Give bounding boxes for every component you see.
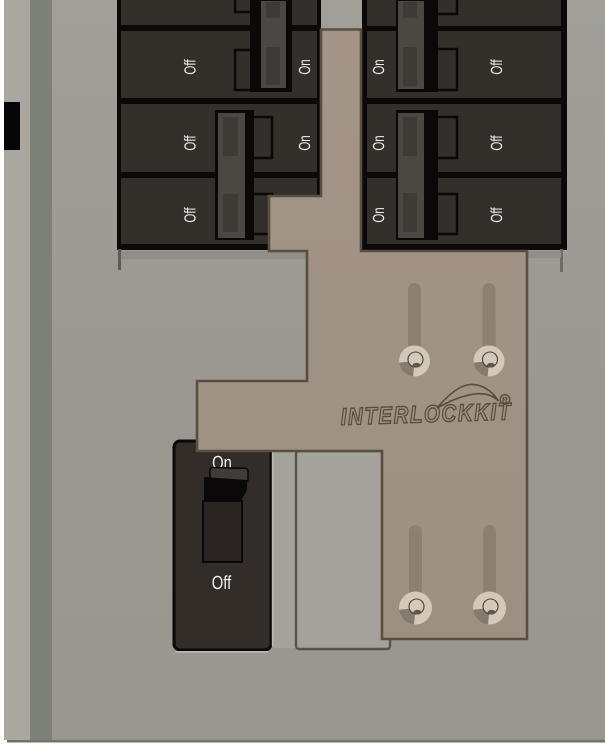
svg-text:Off: Off <box>183 135 200 151</box>
svg-text:On: On <box>297 135 314 150</box>
svg-text:Off: Off <box>489 207 506 223</box>
svg-text:On: On <box>371 135 388 150</box>
svg-text:INTERLOCKKIT: INTERLOCKKIT <box>340 398 512 431</box>
svg-text:R: R <box>502 396 508 405</box>
svg-text:On: On <box>297 59 314 74</box>
svg-text:Off: Off <box>489 59 506 75</box>
svg-text:Off: Off <box>212 573 232 594</box>
svg-text:Off: Off <box>183 207 200 223</box>
svg-text:Off: Off <box>489 135 506 151</box>
svg-text:Off: Off <box>183 59 200 75</box>
svg-text:On: On <box>371 59 388 74</box>
svg-text:On: On <box>371 207 388 222</box>
